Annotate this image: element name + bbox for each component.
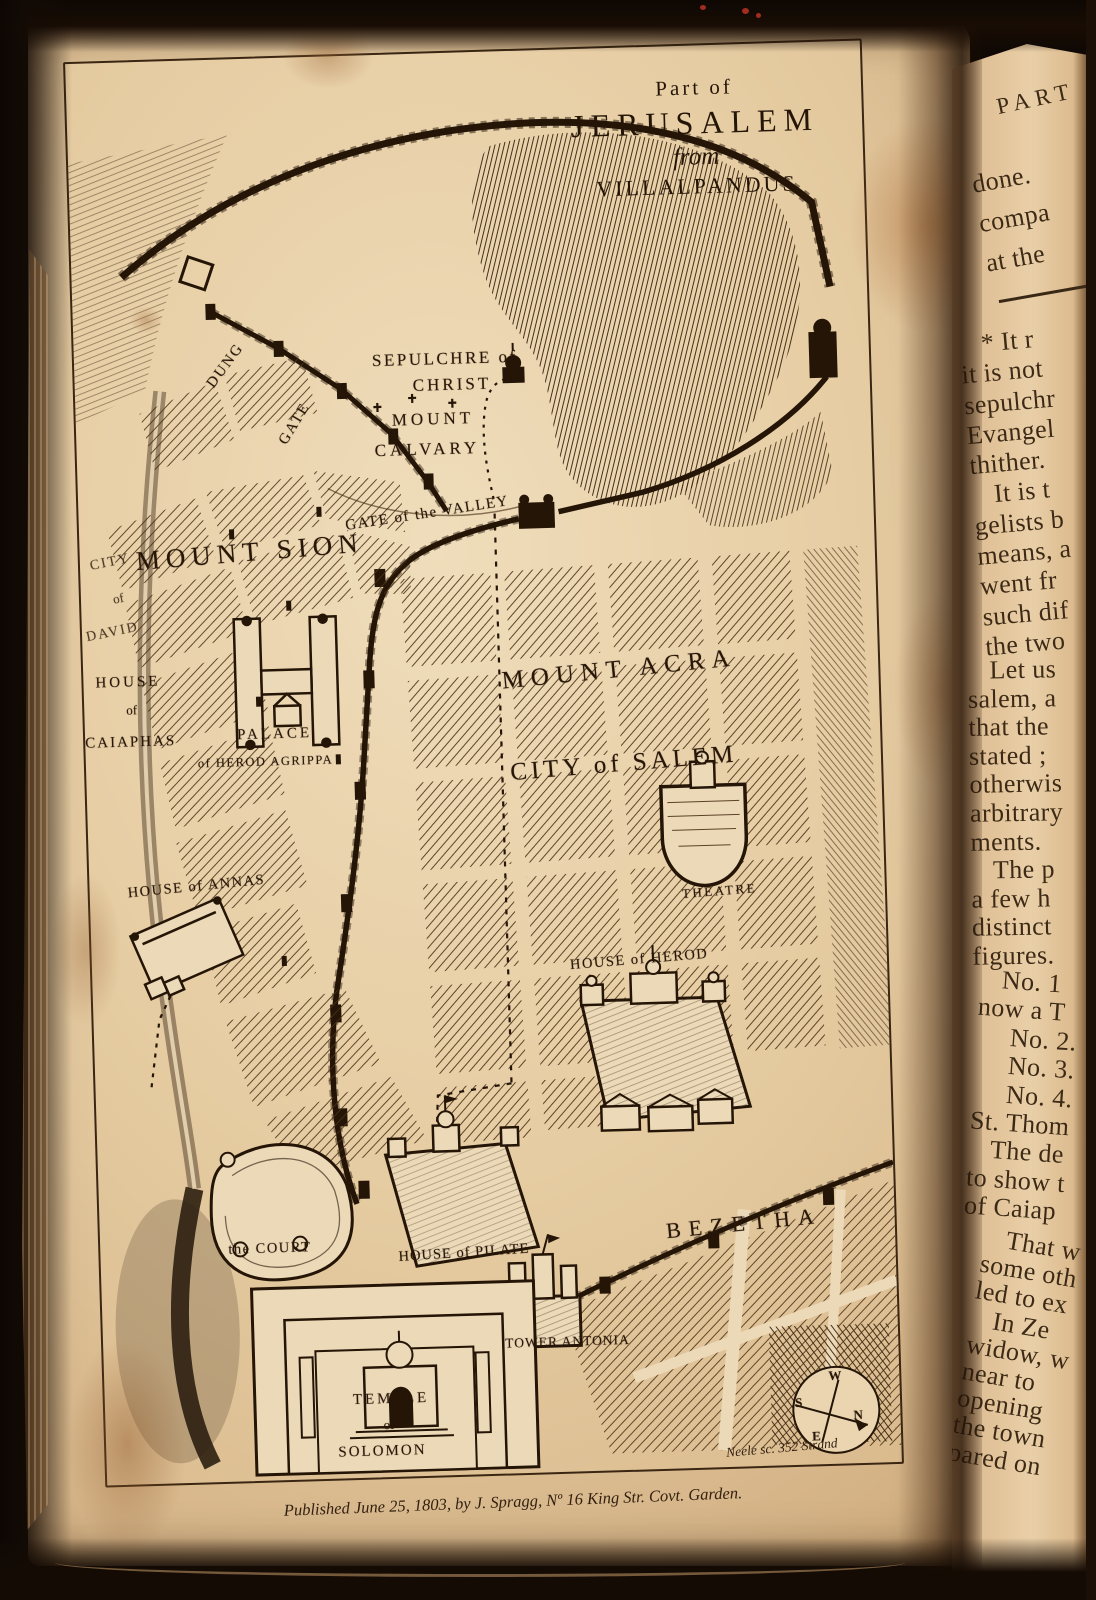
label-mount-calvary: CALVARY (374, 438, 480, 461)
map-page: Part of JERUSALEM from VILLALPANDUS SEPU… (28, 20, 970, 1566)
book-top-edge (0, 0, 1096, 52)
label-house-of-caiaphas: HOUSE (95, 674, 160, 693)
text-line: now a T (977, 993, 1079, 1028)
label-house-of-caiaphas: CAIAPHAS (85, 733, 176, 753)
text-line: that the (968, 712, 1062, 742)
footnote-rule (999, 277, 1096, 303)
label-the-court: the COURT (228, 1239, 312, 1258)
red-speck (700, 5, 706, 10)
publication-imprint: Published June 25, 1803, by J. Spragg, N… (233, 1481, 793, 1522)
text-column-segment: Let us salem, a that the stated ; otherw… (967, 655, 1066, 971)
text-line: arbitrary (970, 798, 1064, 828)
book-gutter-shadow (898, 28, 982, 1573)
red-speck (742, 8, 749, 14)
text-line: distinct (972, 913, 1066, 943)
map-engraving (65, 41, 902, 1486)
court-building (209, 1142, 354, 1281)
red-speck (756, 13, 761, 18)
page-bottom-edge-highlight (55, 1548, 905, 1577)
text-line: ments. (970, 827, 1064, 857)
label-palace-of-herod-agrippa: PALACE (237, 725, 312, 744)
label-house-of-caiaphas: of (126, 702, 137, 718)
compass-north-label: N (853, 1407, 863, 1423)
text-line: The p (993, 855, 1065, 885)
text-column-segment: done. compa at the (969, 141, 1096, 304)
compass-west-label: W (828, 1368, 841, 1384)
running-head: PART (994, 78, 1077, 120)
text-line: a few h (971, 884, 1065, 914)
text-line: stated ; (969, 741, 1063, 771)
map-title: Part of JERUSALEM from VILLALPANDUS (536, 71, 856, 204)
text-line: otherwis (969, 770, 1063, 800)
label-sepulchre-of-christ: CHRIST (412, 374, 491, 396)
map-plate: Part of JERUSALEM from VILLALPANDUS SEPU… (63, 38, 904, 1487)
label-temple-of-solomon: SOLOMON (338, 1442, 427, 1462)
photo-right-edge (1086, 0, 1096, 1600)
label-mount-calvary: MOUNT (392, 408, 475, 430)
label-temple-of-solomon: of (383, 1417, 394, 1433)
text-line: Let us (989, 655, 1061, 685)
compass-south-label: S (795, 1395, 803, 1411)
label-temple-of-solomon: TEMPLE (353, 1390, 430, 1409)
